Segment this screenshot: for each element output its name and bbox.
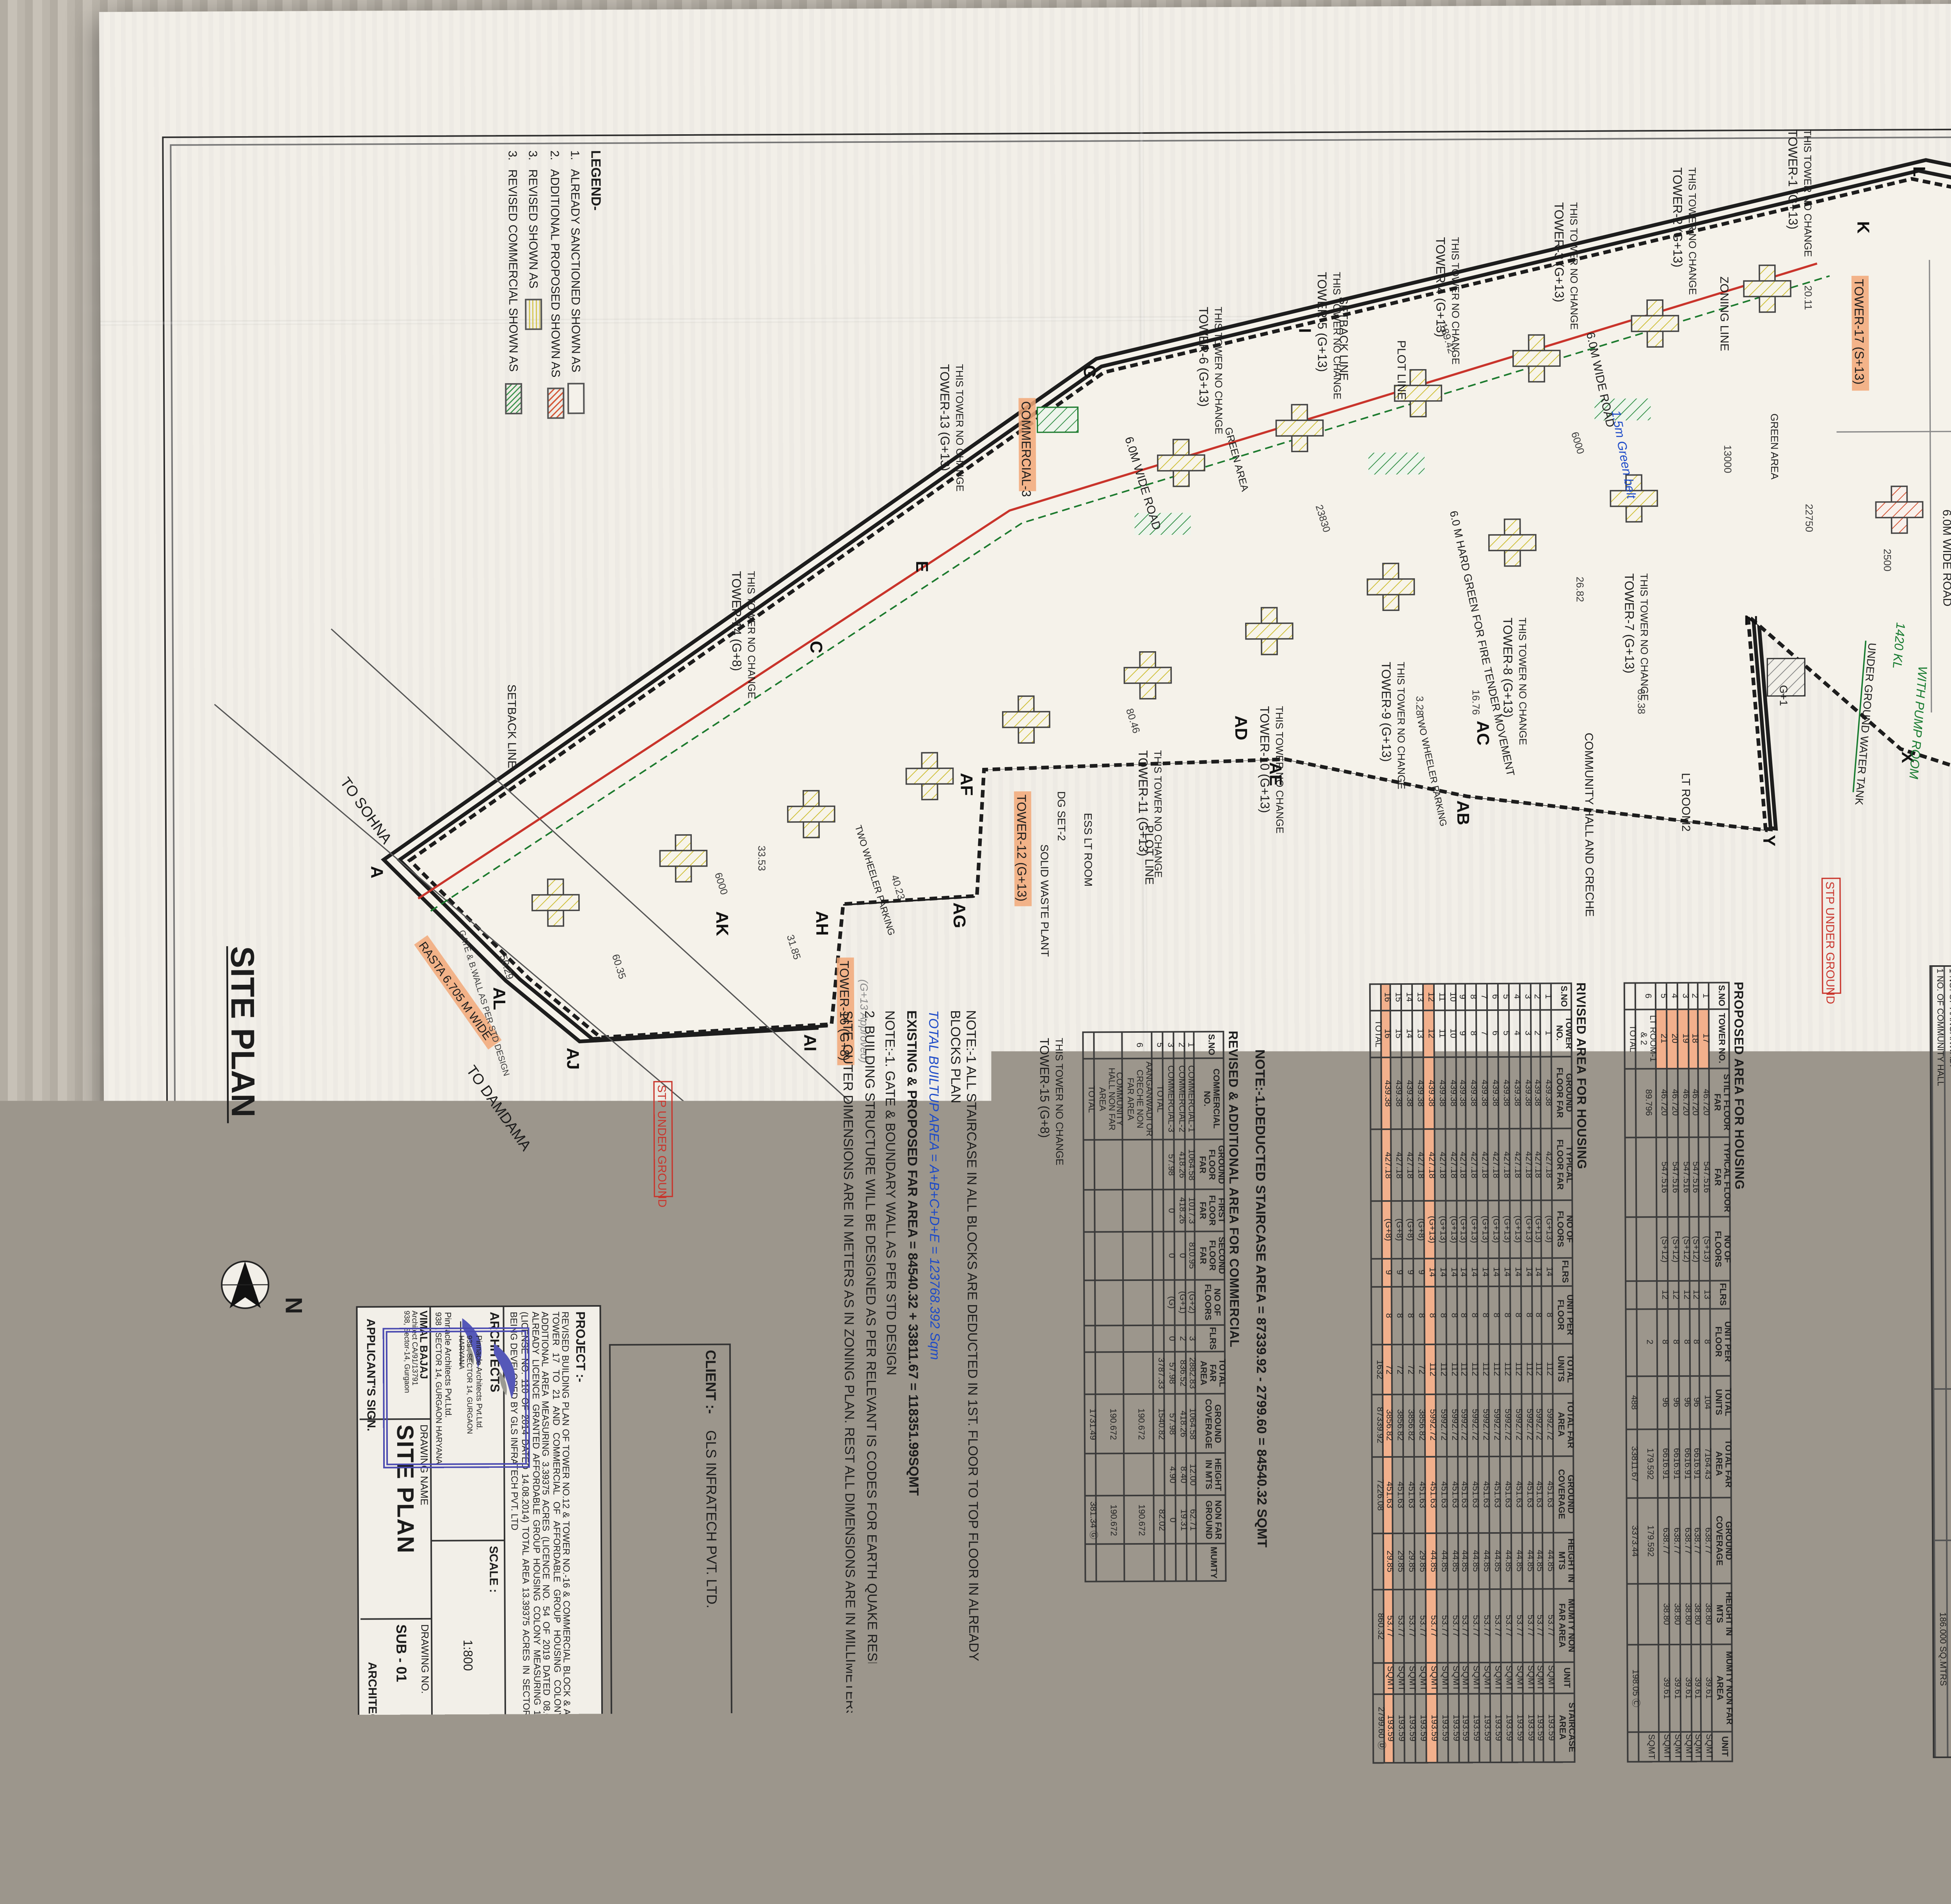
firm-name: Pinnacle Architects Pvt.Ltd. — [473, 1335, 483, 1460]
legend-item: 3.REVISED COMMERCIAL SHOWN AS — [504, 151, 523, 619]
area-statement: AREA STATEMENT TOTAL AREA OF PLOT ADDING… — [1850, 964, 1951, 1758]
client-name: GLS INFRATECH PVT. LTD. — [703, 1430, 720, 1608]
legend-item: 1.ALREADY SANCTIONED SHOWN AS — [566, 150, 585, 618]
plan-label: SOLID WASTE PLANT — [1038, 844, 1051, 957]
note-existing-proposed-far: EXISTING & PROPOSED FAR AREA = 84540.32 … — [903, 1010, 922, 1759]
legend-swatch-plain — [567, 383, 585, 414]
note-structure: 2. BUILDING STRUCTURE WILL BE DESIGNED A… — [860, 1011, 879, 1760]
boundary-letter: C — [807, 641, 826, 653]
boundary-letter: A — [367, 866, 386, 878]
client-label: CLIENT :- — [703, 1350, 719, 1414]
plan-label: THIS TOWER NO CHANGE — [745, 571, 757, 698]
data-table: S.NOCOMMERCIAL NO.GROUND FLOOR FARFIRST … — [1082, 1031, 1226, 1583]
firm-address: 938 , SECTOR 14, GURGAON HARYANA — [458, 1335, 474, 1460]
legend-item: 2.ADDITIONAL PROPOSED SHOWN AS — [545, 150, 565, 618]
applicants-sign-label: APPLICANT'S SIGN. — [364, 1318, 378, 1431]
plan-label: 26.82 — [1574, 577, 1586, 602]
legend-swatch-yellow — [525, 299, 542, 330]
plan-label: N — [281, 1297, 307, 1314]
plan-label: TOWER-6 (G+13) — [1196, 307, 1211, 407]
boundary-letter: L — [1910, 166, 1929, 177]
plan-label: SITE PLAN — [224, 946, 261, 1117]
data-table: S.NOTOWER NO.STILT FLOOR FARTYPICAL FLOO… — [1624, 982, 1733, 1762]
plan-label: 20.11 — [1802, 285, 1814, 310]
drawing-no: SUB - 01 — [393, 1624, 410, 1765]
plan-label: STP UNDER GROUND — [1823, 881, 1837, 1004]
plan-label: THIS TOWER NO CHANGE — [1274, 706, 1286, 833]
scale-value: 1:800 — [460, 1546, 475, 1764]
boundary-letter: E — [912, 561, 931, 572]
plan-label: THIS TOWER NO CHANGE — [954, 364, 966, 492]
plan-label: 33.53 — [756, 845, 768, 871]
client-block: CLIENT :- GLS INFRATECH PVT. LTD. — [609, 1344, 733, 1762]
scanned-site-plan-photo: AALAJAIAHAKAGAFAEADACABZYXWVUTSGIKLMNOPQ… — [0, 0, 1951, 1904]
plan-label: TOWER-5 (G+13) — [1315, 272, 1329, 372]
plan-label: TOWER-9 (G+13) — [1379, 662, 1393, 762]
boundary-letter: K — [1853, 221, 1873, 234]
boundary-letter: I — [1295, 328, 1314, 333]
plan-label: COMMERCIAL-3 — [1019, 401, 1033, 497]
plan-label: THIS TOWER NO CHANGE — [1568, 202, 1580, 330]
plan-label: STP UNDER GROUND — [655, 1085, 668, 1208]
plan-label: COMMUNITY HALL AND CRECHE — [1582, 733, 1596, 917]
scale-label: SCALE : — [487, 1546, 501, 1764]
architects-sign-label: ARCHITECTS SIGN — [365, 1662, 380, 1769]
plan-label: TOWER-10 (G+13) — [1258, 706, 1272, 813]
drawing-no-label: DRAWING NO. — [418, 1624, 430, 1765]
plan-label: 3.28 — [1414, 696, 1426, 716]
plan-label: THIS TOWER NO CHANGE — [1638, 573, 1650, 701]
note-gate: NOTE:-1. GATE & BOUNDARY WALL AS PER STD… — [882, 1011, 901, 1760]
boundary-letter: AH — [812, 911, 832, 936]
plan-label: TOWER-14 (G+8) — [729, 571, 744, 671]
legend: LEGEND- 1.ALREADY SANCTIONED SHOWN AS2.A… — [519, 150, 606, 619]
data-table: S.NOTOWER NO.GROUND FLOOR FARTYPICAL FLO… — [1368, 982, 1575, 1764]
plan-label: TOWER-12 (G+13) — [1015, 794, 1029, 901]
architect-stamp-box: Pinnacle Architects Pvt.Ltd. 938 , SECTO… — [386, 1330, 527, 1465]
project-label: PROJECT :- — [574, 1311, 588, 1382]
plan-label: PLOT LINE — [1143, 825, 1156, 885]
plan-label: LT ROOM2 — [1679, 773, 1692, 832]
boundary-letter: AK — [713, 911, 732, 936]
boundary-letter: Z — [1741, 615, 1761, 625]
north-arrow — [222, 1261, 269, 1309]
plan-label: DG SET-2 — [1055, 791, 1068, 841]
boundary-letter: AB — [1453, 800, 1473, 825]
plan-label: 2500 — [1882, 549, 1893, 572]
boundary-letter: Y — [1759, 835, 1779, 847]
pinnacle-logo — [490, 1335, 522, 1407]
plan-label: 16.76 — [1470, 689, 1482, 715]
plan-label: TOWER-17 (S+13) — [1852, 279, 1866, 385]
plan-label: TOWER-3 (G+13) — [1552, 202, 1566, 302]
plan-label: TOWER-1 (G+13) — [1786, 130, 1800, 229]
legend-title: LEGEND- — [588, 150, 606, 618]
note-staircase: NOTE:-1 ALL STAIRCASE IN ALL BLOCKS ARE … — [947, 1010, 981, 1759]
plan-label: G+1 — [1777, 685, 1789, 706]
boundary-letter: AJ — [563, 1048, 583, 1069]
plan-label: TOWER-8 (G+13) — [1501, 618, 1515, 718]
notes-block: NOTE:-1 ALL STAIRCASE IN ALL BLOCKS ARE … — [689, 1010, 981, 1760]
note-dimensions: SITE OUTER DIMENSIONS ARE IN METERS AS I… — [839, 1011, 857, 1760]
boundary-letter: AD — [1231, 716, 1251, 741]
plan-label: TO DAMDAMA — [463, 1062, 534, 1154]
boundary-letter: AC — [1473, 721, 1493, 746]
boundary-letter: AG — [950, 902, 969, 928]
plan-label: THIS TOWER NO CHANGE — [1395, 662, 1407, 789]
plan-label: 65.38 — [1636, 689, 1647, 714]
legend-swatch-green — [505, 383, 522, 414]
plan-label: SETBACK LINE — [1337, 297, 1350, 381]
plan-label: ESS LT ROOM — [1082, 813, 1095, 886]
plan-label: GREEN AREA — [1768, 414, 1780, 480]
plan-label: 6.0M WIDE ROAD — [1940, 510, 1951, 607]
boundary-letter: AL — [490, 987, 509, 1010]
plan-label: TOWER-13 (G+13) — [938, 364, 952, 471]
plan-label: THIS TOWER NO CHANGE — [1686, 167, 1699, 295]
plan-label: TOWER-2 (G+13) — [1670, 167, 1685, 267]
table-row: COMMUNITY HALL NON FAR AREA190.672190.67… — [1094, 1032, 1125, 1581]
plan-label: TOWER-7 (G+13) — [1622, 573, 1636, 673]
plan-label: PLOT LINE — [1395, 340, 1408, 400]
table-proposed-housing: PROPOSED AREA FOR HOUSING S.NOTOWER NO.S… — [1578, 982, 1749, 1763]
plan-label: TO SOHNA — [337, 774, 395, 847]
plan-label: 22750 — [1803, 504, 1815, 532]
boundary-letter: AF — [957, 773, 976, 796]
note-handwritten-total: TOTAL BUILTUP AREA = A+B+C+D+E = 123768.… — [925, 1010, 944, 1759]
plan-label: SETBACK LINE — [505, 684, 518, 768]
table-row: 6AANGANWADI OR CRECHE NON FAR AREA190.67… — [1123, 1032, 1154, 1581]
legend-swatch-red — [547, 388, 564, 419]
table-row: 6LT ROOM-1 & 289.7962179.592179.592SQMT — [1636, 983, 1659, 1762]
plan-label: ZONING LINE — [1718, 276, 1731, 351]
plan-label: THIS TOWER NO CHANGE — [1802, 129, 1814, 257]
legend-item: 3.REVISED SHOWN AS — [524, 151, 544, 619]
boundary-letter: G — [1080, 365, 1099, 378]
site-plan-sheet: AALAJAIAHAKAGAFAEADACABZYXWVUTSGIKLMNOPQ… — [99, 0, 1951, 1822]
table-revised-housing: RIVISED AREA FOR HOUSING S.NOTOWER NO.GR… — [1210, 982, 1591, 1764]
plan-label: THIS TOWER NO CHANGE — [1517, 618, 1529, 745]
plan-label: THIS TOWER NO CHANGE — [1212, 307, 1224, 434]
plan-label: 13000 — [1722, 445, 1734, 473]
